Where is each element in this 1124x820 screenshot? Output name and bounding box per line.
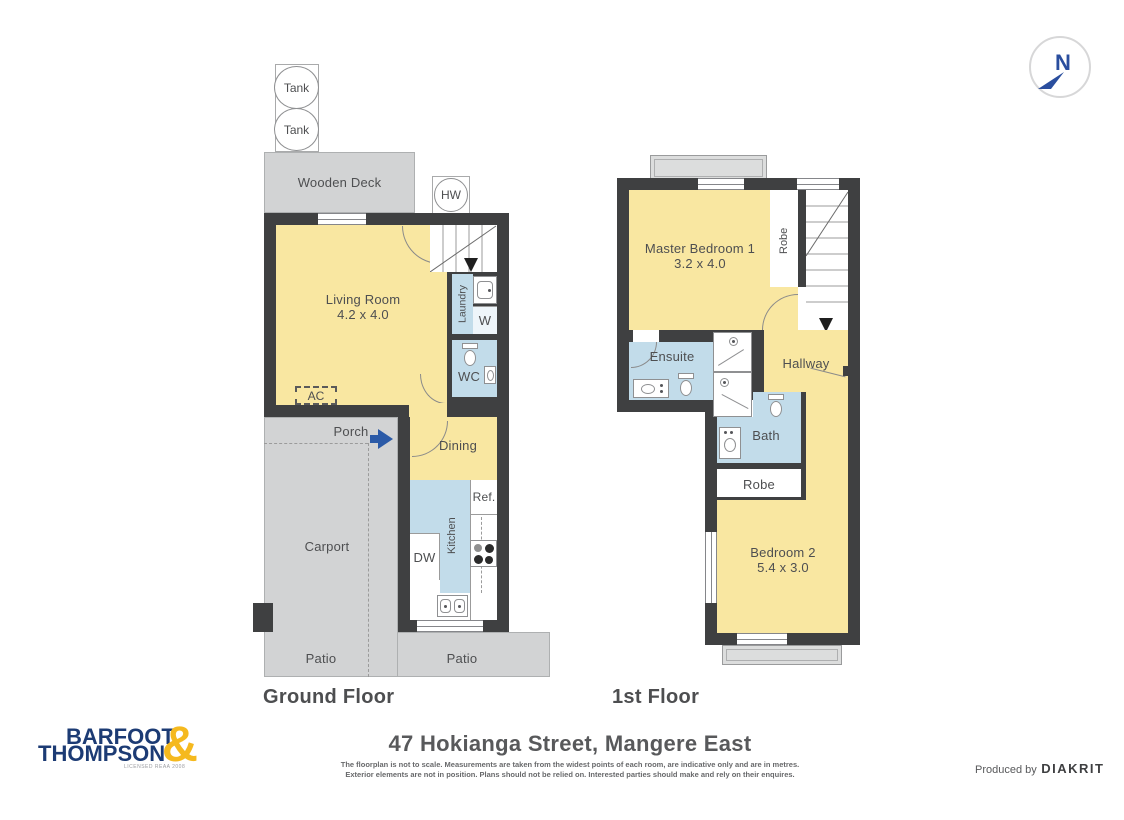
living-room-name: Living Room [288,292,438,307]
master-bedroom-dims: 3.2 x 4.0 [630,256,770,271]
hall-robe: Robe [717,469,801,500]
bath-vanity-icon [719,427,741,459]
master-robe-label: Robe [774,210,794,272]
carport-boundary-dash [368,443,369,677]
tank-2-label: Tank [284,123,309,137]
bath-label: Bath [736,428,796,443]
kitchen-window [417,620,483,632]
north-compass: N [1029,36,1091,98]
dining-label: Dining [428,438,488,453]
bath-toilet-bowl [770,401,782,417]
address-title: 47 Hokianga Street, Mangere East [270,731,870,757]
ac-unit: AC [295,386,337,405]
ensuite-toilet-icon [678,373,694,379]
ground-floor-label: Ground Floor [263,686,394,709]
wc-toilet-bowl [464,350,476,366]
disclaimer-line-2: Exterior elements are not in position. P… [280,770,860,780]
hallway-label: Hallway [776,356,836,371]
shower-hall-wall [752,330,764,400]
porch-label: Porch [326,424,376,439]
stairwell-window [797,178,839,190]
robe-corridor-wall [801,392,806,500]
tank-1: Tank [274,66,319,109]
corridor-door-stub [843,366,848,376]
ff-stairs-icon [806,190,848,330]
ac-label: AC [308,389,325,403]
bedroom-2-dims: 5.4 x 3.0 [718,560,848,575]
ensuite-label: Ensuite [630,349,714,364]
producer-brand: DIAKRIT [1041,761,1104,776]
laundry-label: Laundry [452,276,473,332]
produced-by: Produced by DIAKRIT [975,760,1115,778]
disclaimer-line-1: The floorplan is not to scale. Measureme… [280,760,860,770]
living-room-dims: 4.2 x 4.0 [288,307,438,322]
living-room-label: Living Room 4.2 x 4.0 [288,292,438,322]
floorplan-canvas: N Tank Tank Wooden Deck HW Living Room 4… [0,0,1124,820]
hallway-corridor [806,392,848,502]
master-bedroom-name: Master Bedroom 1 [630,241,770,256]
ff-balcony-bottom [722,645,842,665]
patio-right-label: Patio [432,651,492,666]
disclaimer: The floorplan is not to scale. Measureme… [280,760,860,779]
bath-shower-icon [713,372,752,417]
bedroom-2-label: Bedroom 2 5.4 x 3.0 [718,545,848,575]
produced-by-prefix: Produced by [975,764,1037,776]
first-floor-label: 1st Floor [612,686,699,709]
wooden-deck: Wooden Deck [264,152,415,213]
fridge-label: Ref. [473,490,496,505]
bath-toilet-icon [768,394,784,400]
patio-left-label: Patio [291,651,351,666]
stove-icon [470,540,497,567]
logo-ampersand: & [162,724,198,764]
wooden-deck-label: Wooden Deck [298,175,382,190]
carport-post [253,603,273,632]
ensuite-vanity-icon [633,379,669,398]
washer-label: W [479,313,491,328]
robe-stair-wall [798,190,806,287]
master-ensuite-wall-a [629,330,633,342]
hall-robe-label: Robe [743,477,775,492]
dw-cell: DW [410,533,440,580]
gf-stairs-arrow-icon [464,258,478,272]
entry-arrow-icon [370,429,394,449]
kitchen-room [410,480,470,533]
tank-1-label: Tank [284,81,309,95]
wc-toilet-icon [462,343,478,349]
hw-label: HW [441,188,461,202]
tank-2: Tank [274,108,319,151]
washer-cell: W [473,306,497,334]
gf-passage [409,403,447,417]
bedroom-2-side-window [705,532,717,603]
carport-label: Carport [287,539,367,554]
living-room-window [318,213,366,225]
bedroom-2-bottom-window [737,633,787,645]
kitchen-sink-icon [437,595,468,617]
north-arrow-icon [1037,64,1065,90]
ensuite-toilet-bowl [680,380,692,396]
ensuite-shower-icon [713,332,752,372]
fridge-cell: Ref. [471,480,497,515]
master-bedroom-label: Master Bedroom 1 3.2 x 4.0 [630,241,770,271]
porch-boundary-dash [264,443,368,444]
bedroom-2-name: Bedroom 2 [718,545,848,560]
dw-label: DW [413,550,435,565]
master-window [698,178,744,190]
wc-label: WC [452,369,486,384]
laundry-tub-icon [473,276,497,304]
kitchen-label: Kitchen [444,504,460,568]
brand-logo: BARFOOT THOMPSON & LICENSED REAA 2008 [38,728,198,788]
hw-cylinder: HW [434,178,468,212]
